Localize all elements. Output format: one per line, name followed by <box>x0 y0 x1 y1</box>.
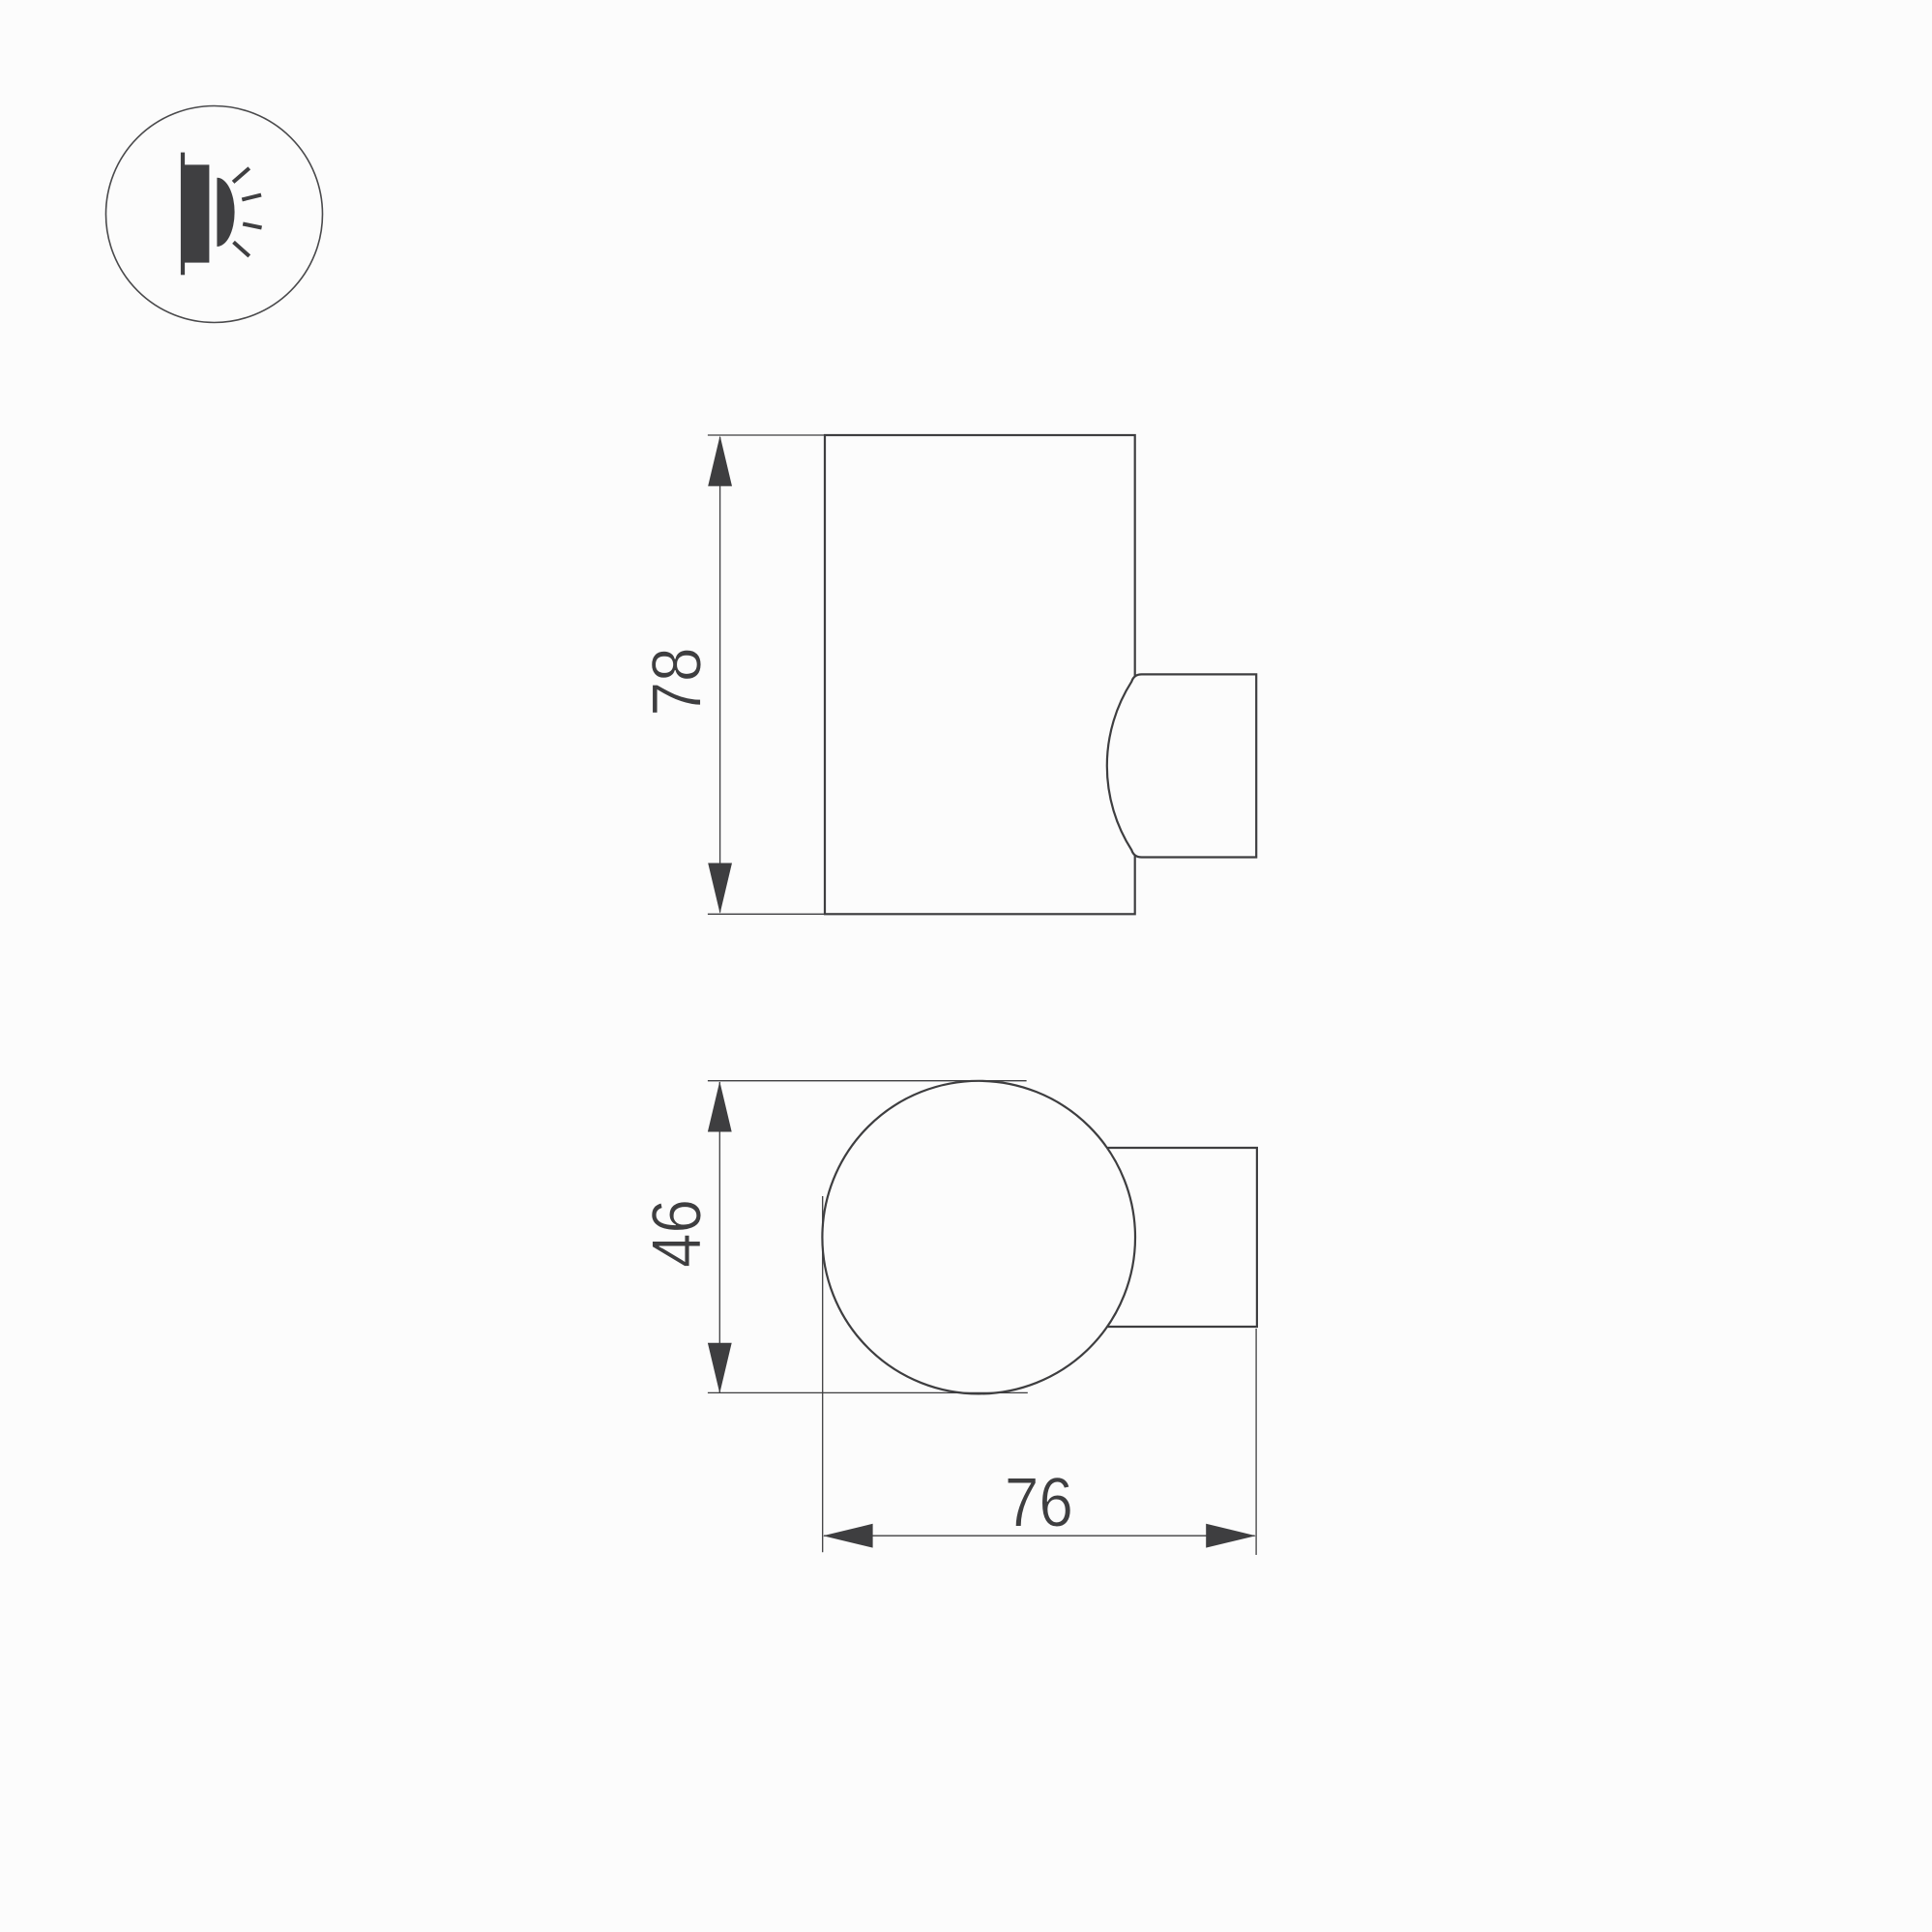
svg-text:46: 46 <box>639 1199 717 1268</box>
svg-text:76: 76 <box>1005 1465 1073 1542</box>
svg-text:78: 78 <box>639 648 717 717</box>
